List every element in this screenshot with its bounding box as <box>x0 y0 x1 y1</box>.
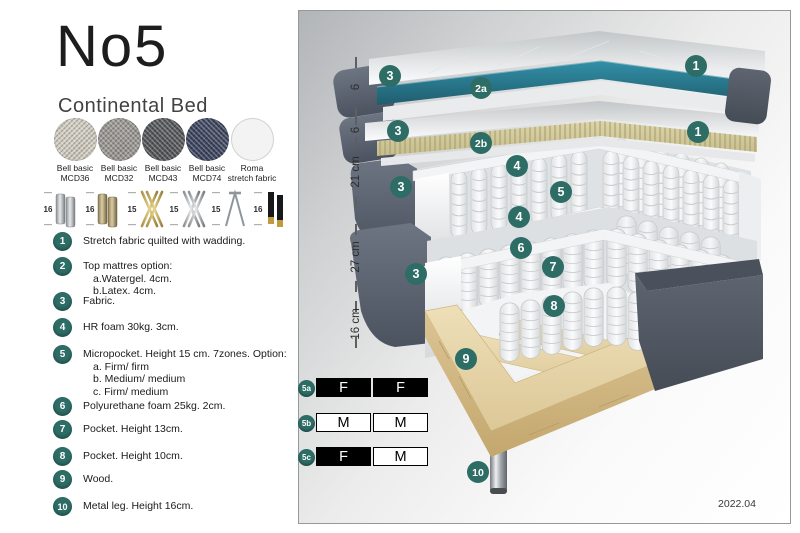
leg-option-twisted-silver: 15 <box>170 192 204 226</box>
feature-item-7: 7 Pocket. Height 13cm. <box>53 420 297 439</box>
lower-box-right-side <box>635 259 763 391</box>
firmness-row-badge: 5b <box>298 415 315 432</box>
svg-text:2b: 2b <box>475 138 487 150</box>
feature-number-badge: 9 <box>53 470 72 489</box>
feature-item-5: 5 Micropocket. Height 15 cm. 7zones. Opt… <box>53 345 297 398</box>
feature-number-badge: 5 <box>53 345 72 364</box>
firmness-cell: M <box>373 447 428 466</box>
firmness-row: F M <box>316 447 428 466</box>
callout-7-pocket-13: 7 <box>542 256 564 278</box>
leg-option-cylinder-silver: 16 <box>44 192 75 227</box>
firmness-row-badge: 5a <box>298 380 315 397</box>
callout-8-pocket-10: 8 <box>543 295 565 317</box>
ruler-tick <box>355 224 357 235</box>
callout-3-fabric: 3 <box>379 65 401 87</box>
callout-3-fabric: 3 <box>405 263 427 285</box>
cylinder-bronze-leg-icon <box>98 194 117 227</box>
feature-item-3: 3 Fabric. <box>53 292 297 311</box>
feature-number-badge: 8 <box>53 447 72 466</box>
feature-number-badge: 6 <box>53 397 72 416</box>
callout-2a-watergel: 2a <box>470 77 492 99</box>
svg-text:4: 4 <box>514 159 521 173</box>
ruler-label: 21 cm <box>350 156 362 187</box>
leg-foot <box>490 488 507 494</box>
svg-text:3: 3 <box>398 180 405 194</box>
svg-text:16: 16 <box>254 205 263 214</box>
callout-1-stretch-fabric: 1 <box>687 121 709 143</box>
ruler-tick <box>355 57 357 68</box>
ruler-label: 16 cm <box>350 308 362 339</box>
svg-text:3: 3 <box>413 267 420 281</box>
feature-item-1: 1 Stretch fabric quilted with wadding. <box>53 232 297 251</box>
firmness-cell: M <box>316 413 371 432</box>
firmness-cell: F <box>316 378 371 397</box>
callout-3-fabric: 3 <box>390 176 412 198</box>
twisted-silver-leg-icon <box>184 192 204 226</box>
svg-text:15: 15 <box>170 205 179 214</box>
callout-3-fabric: 3 <box>387 120 409 142</box>
fabric-swatch-mcd32 <box>98 118 141 161</box>
black-gold-leg-icon <box>268 192 283 227</box>
firmness-cell: M <box>373 413 428 432</box>
firmness-cell: F <box>373 378 428 397</box>
ruler-label: 27 cm <box>350 241 362 272</box>
feature-number-badge: 4 <box>53 318 72 337</box>
page-subtitle: Continental Bed <box>58 95 208 118</box>
firmness-row: M M <box>316 413 428 432</box>
callout-4-hr-foam: 4 <box>506 155 528 177</box>
box-fabric-side <box>350 223 431 347</box>
svg-text:4: 4 <box>516 210 523 224</box>
svg-text:8: 8 <box>551 299 558 313</box>
feature-item-4: 4 HR foam 30kg. 3cm. <box>53 318 297 337</box>
svg-text:16: 16 <box>44 205 53 214</box>
page: No5 Continental Bed Bell basicMCD36 Bell… <box>0 0 800 533</box>
firmness-row: F F <box>316 378 428 397</box>
svg-text:5: 5 <box>558 185 565 199</box>
leg-option-cylinder-bronze: 16 <box>86 192 117 227</box>
feature-item-8: 8 Pocket. Height 10cm. <box>53 447 297 466</box>
ruler-tick <box>355 281 357 292</box>
svg-text:15: 15 <box>128 205 137 214</box>
version-stamp: 2022.04 <box>718 498 756 510</box>
fabric-end-cap-right <box>724 67 772 126</box>
box-side-face <box>635 273 763 391</box>
fabric-swatch-mcd74 <box>186 118 229 161</box>
svg-text:6: 6 <box>518 241 525 255</box>
svg-text:16: 16 <box>86 205 95 214</box>
feature-item-10: 10 Metal leg. Height 16cm. <box>53 497 297 516</box>
svg-text:1: 1 <box>693 59 700 73</box>
svg-text:10: 10 <box>472 467 484 479</box>
ruler-tick <box>355 197 357 208</box>
ruler-label: 6 <box>350 127 362 133</box>
feature-number-badge: 2 <box>53 257 72 276</box>
ruler-tick <box>355 114 357 125</box>
leg-option-hairpin: 15 <box>212 192 244 226</box>
svg-text:1: 1 <box>695 125 702 139</box>
callout-1-stretch-fabric: 1 <box>685 55 707 77</box>
fabric-swatch-roma <box>231 118 274 161</box>
hairpin-leg-icon <box>226 193 244 226</box>
svg-text:9: 9 <box>463 352 470 366</box>
cylinder-silver-leg-icon <box>56 194 75 227</box>
ruler-label: 6 <box>350 84 362 90</box>
svg-text:3: 3 <box>387 69 394 83</box>
feature-number-badge: 1 <box>53 232 72 251</box>
callout-5-micropocket: 5 <box>550 181 572 203</box>
svg-text:7: 7 <box>550 260 557 274</box>
feature-item-9: 9 Wood. <box>53 470 297 489</box>
callout-6-polyurethane: 6 <box>510 237 532 259</box>
callout-10-metal-leg: 10 <box>467 461 489 483</box>
firmness-cell: F <box>316 447 371 466</box>
ruler-tick <box>355 337 357 348</box>
feature-number-badge: 10 <box>53 497 72 516</box>
callout-2b-latex: 2b <box>470 132 492 154</box>
callout-9-wood: 9 <box>455 348 477 370</box>
svg-text:2a: 2a <box>475 83 487 95</box>
leg-options-row: 16 16 15 15 <box>42 186 298 232</box>
svg-text:3: 3 <box>395 124 402 138</box>
leg-option-twisted-gold: 15 <box>128 192 162 226</box>
fabric-caption: Romastretch fabric <box>223 164 281 183</box>
firmness-row-badge: 5c <box>298 449 315 466</box>
feature-item-6: 6 Polyurethane foam 25kg. 2cm. <box>53 397 297 416</box>
page-title: No5 <box>56 18 168 76</box>
twisted-gold-leg-icon <box>142 192 162 226</box>
fabric-swatch-mcd36 <box>54 118 97 161</box>
svg-text:15: 15 <box>212 205 221 214</box>
fabric-swatch-mcd43 <box>142 118 185 161</box>
leg-option-black-gold: 16 <box>254 192 283 227</box>
bed-diagram-panel: 1 3 2a 3 1 2b 4 3 5 4 6 7 3 8 9 10 6 <box>298 10 791 524</box>
ruler-tick <box>355 137 357 148</box>
feature-number-badge: 3 <box>53 292 72 311</box>
callout-4-hr-foam: 4 <box>508 206 530 228</box>
feature-number-badge: 7 <box>53 420 72 439</box>
